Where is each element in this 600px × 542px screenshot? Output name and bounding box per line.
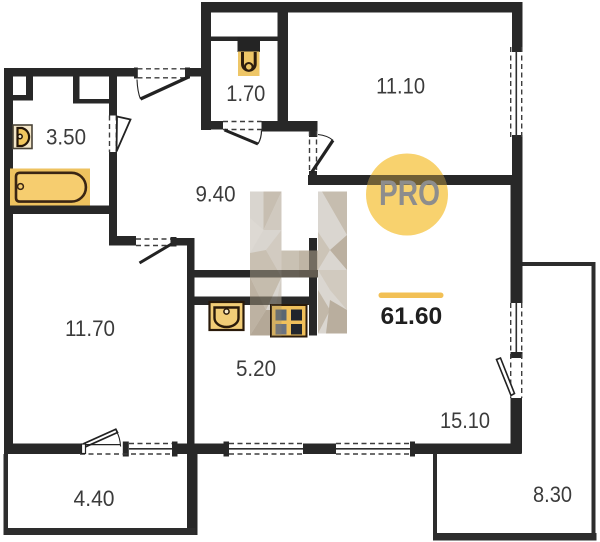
svg-text:61.60: 61.60 — [381, 303, 443, 330]
svg-text:4.40: 4.40 — [74, 486, 115, 511]
svg-text:15.10: 15.10 — [440, 408, 490, 433]
svg-text:3.50: 3.50 — [46, 125, 86, 150]
svg-text:9.40: 9.40 — [196, 181, 236, 206]
svg-text:5.20: 5.20 — [236, 356, 276, 381]
svg-text:11.10: 11.10 — [376, 73, 425, 98]
svg-text:8.30: 8.30 — [533, 482, 572, 507]
svg-text:11.70: 11.70 — [65, 316, 115, 341]
svg-text:1.70: 1.70 — [226, 81, 265, 106]
svg-text:PRO: PRO — [379, 174, 440, 213]
